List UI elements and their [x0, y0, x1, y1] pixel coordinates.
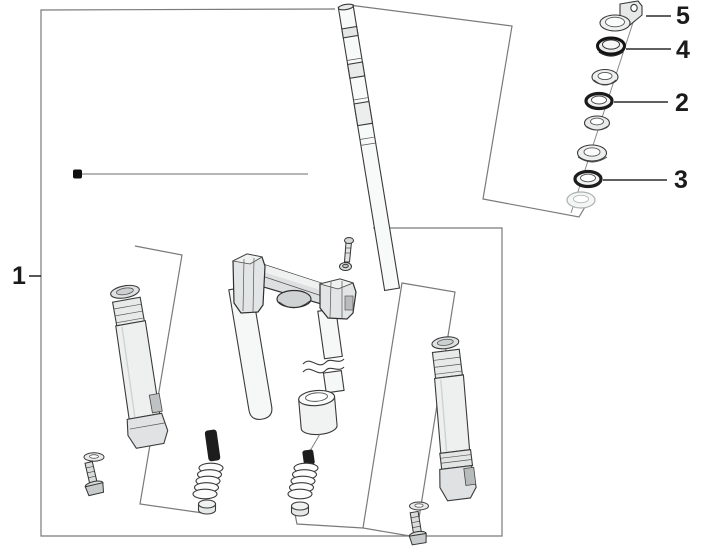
left-fork-rebound-bumper [204, 429, 220, 461]
right-fork-spring [288, 463, 318, 499]
steering-locknut-part4 [598, 38, 625, 56]
left-axle-washer [84, 453, 104, 461]
left-fork-spring [193, 463, 223, 499]
assembly-bullet-marker [73, 170, 82, 179]
parts-diagram-canvas [0, 0, 720, 546]
left-axle-bolt [80, 460, 105, 496]
lower-bearing-race [578, 145, 608, 162]
right-axle-washer [410, 502, 429, 510]
bearing-ring-part3 [575, 172, 601, 187]
left-fork-spring-seat-cup [199, 500, 216, 514]
callout-label-5: 5 [670, 4, 696, 28]
parts-diagram-page: 1 2 3 4 5 [0, 0, 720, 546]
right-fork-leg [422, 335, 479, 501]
steering-stop-bracket-part5 [600, 1, 642, 31]
right-fork-spring-seat-cup [292, 502, 309, 516]
right-axle-bolt [406, 511, 428, 545]
clamp-pinch-bolt [340, 238, 354, 271]
center-axis-stub [310, 434, 320, 451]
callout-label-1: 1 [6, 264, 32, 288]
left-fork-leg [102, 283, 170, 449]
dust-seal-ring [567, 192, 595, 208]
callout-label-2: 2 [669, 91, 695, 115]
callout-label-3: 3 [668, 168, 694, 192]
callout-label-4: 4 [670, 38, 696, 62]
steering-bearing-group-pointer [349, 5, 585, 217]
lower-triple-clamp [233, 254, 356, 319]
bearing-ring-part2 [586, 94, 612, 109]
cone-bearing [585, 116, 610, 130]
fork-guide-bushing-cylinder [298, 389, 338, 436]
upper-bearing-race-washer [592, 70, 618, 86]
right-fork-inner-tube [315, 309, 347, 393]
